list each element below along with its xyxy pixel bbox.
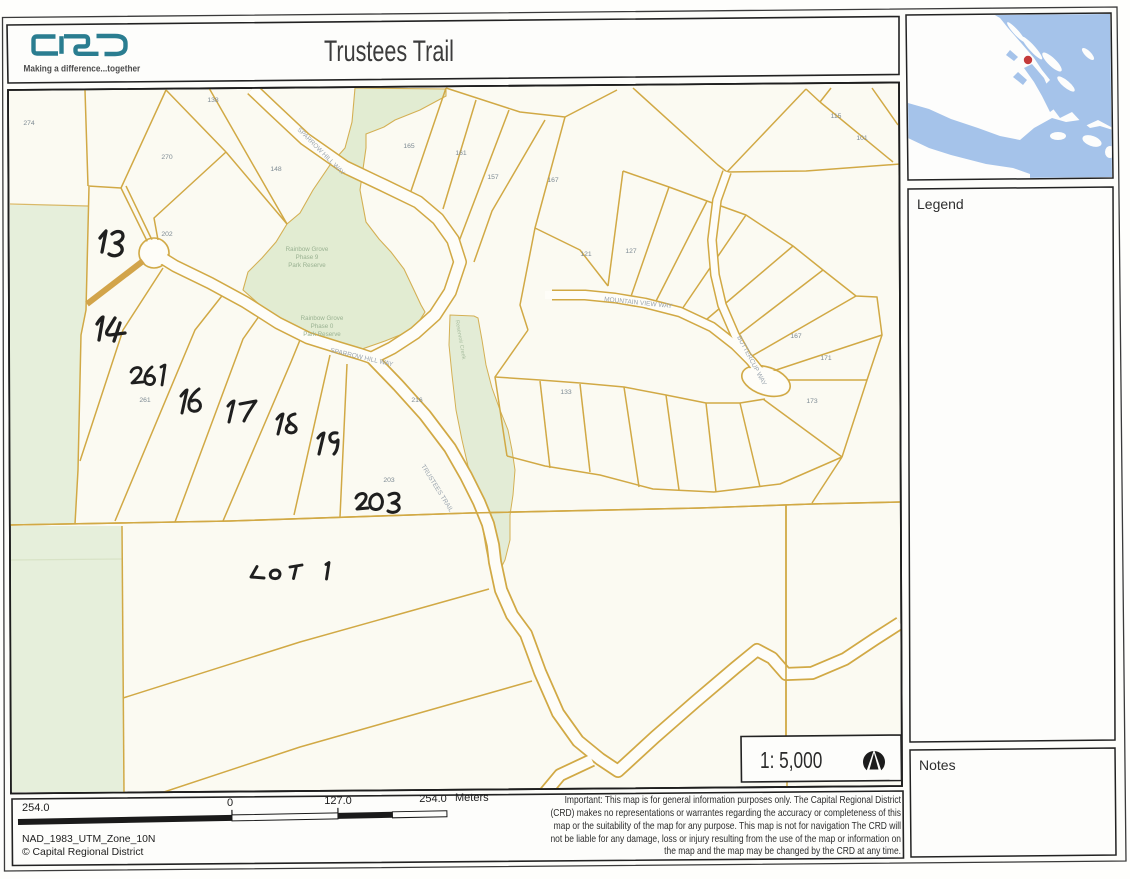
- svg-text:Phase 0: Phase 0: [311, 323, 334, 330]
- svg-text:161: 161: [455, 150, 467, 157]
- svg-text:261: 261: [139, 397, 151, 404]
- svg-text:127: 127: [625, 248, 637, 255]
- svg-text:Making a difference...together: Making a difference...together: [24, 63, 141, 74]
- svg-text:148: 148: [270, 166, 282, 173]
- svg-text:Notes: Notes: [919, 757, 956, 773]
- svg-text:not be liable for any damage,: not be liable for any damage, loss or in…: [550, 833, 901, 844]
- svg-text:171: 171: [820, 355, 832, 362]
- svg-text:Meters: Meters: [455, 792, 489, 804]
- svg-text:127.0: 127.0: [324, 795, 352, 807]
- svg-text:138: 138: [207, 97, 219, 104]
- svg-text:Park Reserve: Park Reserve: [303, 331, 341, 338]
- svg-text:(CRD) makes no representations: (CRD) makes no representations or warran…: [550, 807, 901, 818]
- svg-text:270: 270: [161, 154, 173, 161]
- svg-text:map or the suitability of the: map or the suitability of the map for an…: [554, 820, 901, 831]
- svg-text:0: 0: [227, 797, 233, 809]
- svg-text:Important: This map is for gen: Important: This map is for general infor…: [565, 794, 902, 805]
- svg-text:202: 202: [161, 231, 173, 238]
- svg-text:216: 216: [411, 397, 423, 404]
- svg-text:133: 133: [560, 389, 572, 396]
- svg-text:Phase 9: Phase 9: [296, 254, 319, 261]
- svg-text:Trustees Trail: Trustees Trail: [324, 33, 454, 67]
- svg-text:254.0: 254.0: [22, 802, 50, 814]
- svg-text:101: 101: [856, 135, 868, 142]
- svg-text:121: 121: [580, 251, 592, 258]
- svg-text:NAD_1983_UTM_Zone_10N: NAD_1983_UTM_Zone_10N: [22, 834, 155, 845]
- svg-text:Park Reserve: Park Reserve: [288, 262, 326, 269]
- svg-text:274: 274: [23, 120, 35, 127]
- svg-text:Rainbow Grove: Rainbow Grove: [301, 315, 344, 322]
- svg-text:203: 203: [383, 477, 395, 484]
- svg-text:173: 173: [806, 398, 818, 405]
- svg-text:1: 5,000: 1: 5,000: [760, 749, 822, 774]
- svg-text:167: 167: [547, 177, 559, 184]
- svg-text:167: 167: [790, 333, 802, 340]
- svg-text:115: 115: [831, 113, 842, 120]
- svg-text:254.0: 254.0: [419, 793, 447, 805]
- svg-text:165: 165: [403, 143, 415, 150]
- svg-text:the map and the map may be cha: the map and the map may be changed by th…: [664, 845, 901, 856]
- svg-text:Legend: Legend: [917, 196, 964, 212]
- svg-text:157: 157: [487, 174, 499, 181]
- svg-text:Rainbow Grove: Rainbow Grove: [286, 246, 329, 253]
- svg-text:© Capital Regional District: © Capital Regional District: [22, 847, 144, 858]
